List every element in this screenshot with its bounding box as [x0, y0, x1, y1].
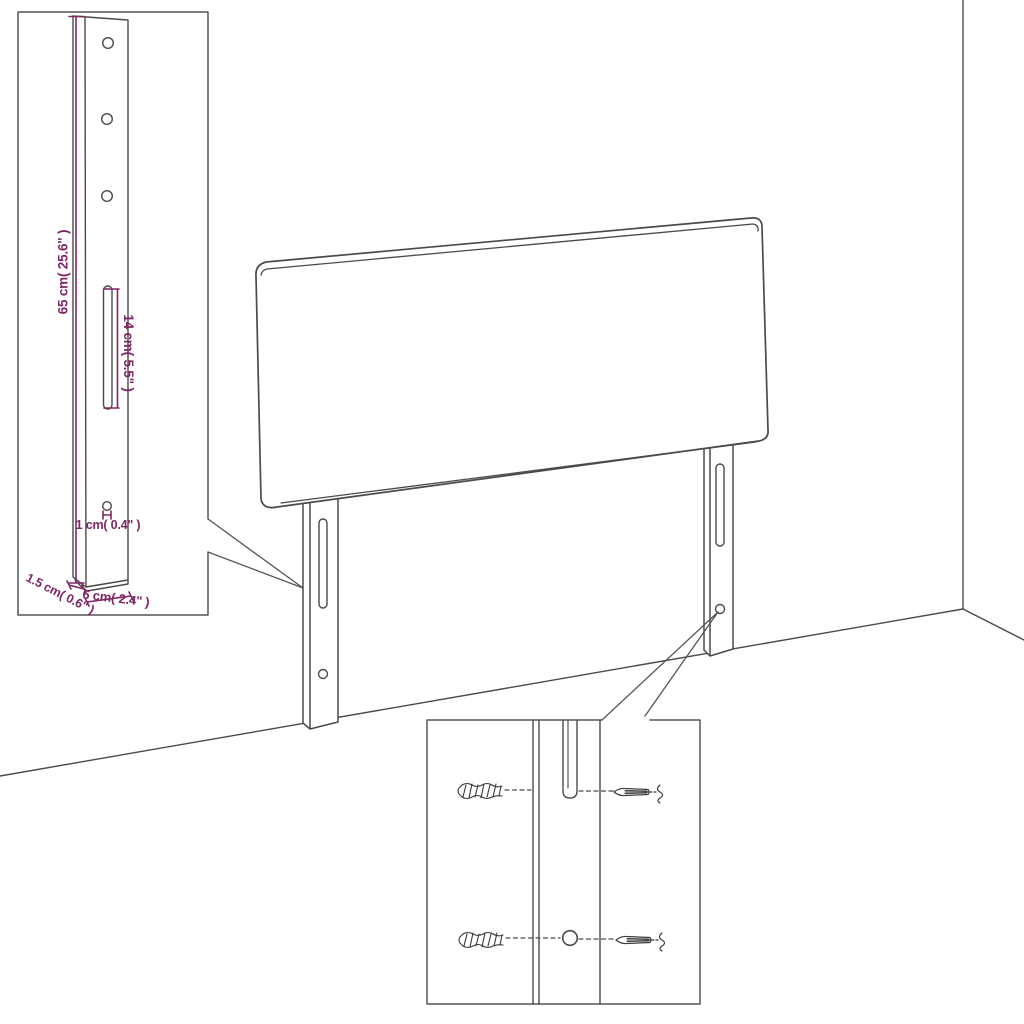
callout-wedge-to-right-hole — [602, 612, 718, 720]
dimension-label-hole-diameter: 1 cm( 0.4" ) — [76, 519, 141, 532]
right-leg-hole — [716, 605, 725, 614]
bracket-slot — [104, 286, 113, 409]
callout-wedge-to-left-leg — [208, 519, 303, 588]
bracket-hole-2 — [102, 114, 113, 125]
callout-wedges — [208, 519, 718, 720]
bracket-outline — [73, 16, 128, 587]
left-leg-hole — [319, 670, 328, 679]
panel-outline — [256, 218, 768, 508]
diagram-canvas — [0, 0, 1024, 1024]
detail-inset-mounting — [427, 720, 700, 1004]
headboard-dimension-diagram: 65 cm( 25.6" ) 14 cm( 5.5" ) 1 cm( 0.4" … — [0, 0, 1024, 1024]
headboard-panel — [256, 218, 768, 508]
bracket-small-hole — [103, 502, 112, 511]
leg-cutouts — [319, 464, 725, 679]
right-leg-slot — [716, 464, 724, 546]
bracket-side-edge — [85, 18, 86, 588]
bracket-hole-3 — [102, 191, 113, 202]
bracket-hole-1 — [103, 38, 114, 49]
dimension-label-height: 65 cm( 25.6" ) — [56, 230, 70, 315]
dimension-label-slot-length: 14 cm( 5.5" ) — [121, 314, 135, 391]
left-leg-slot — [319, 519, 327, 608]
floor-line-right — [963, 609, 1024, 640]
